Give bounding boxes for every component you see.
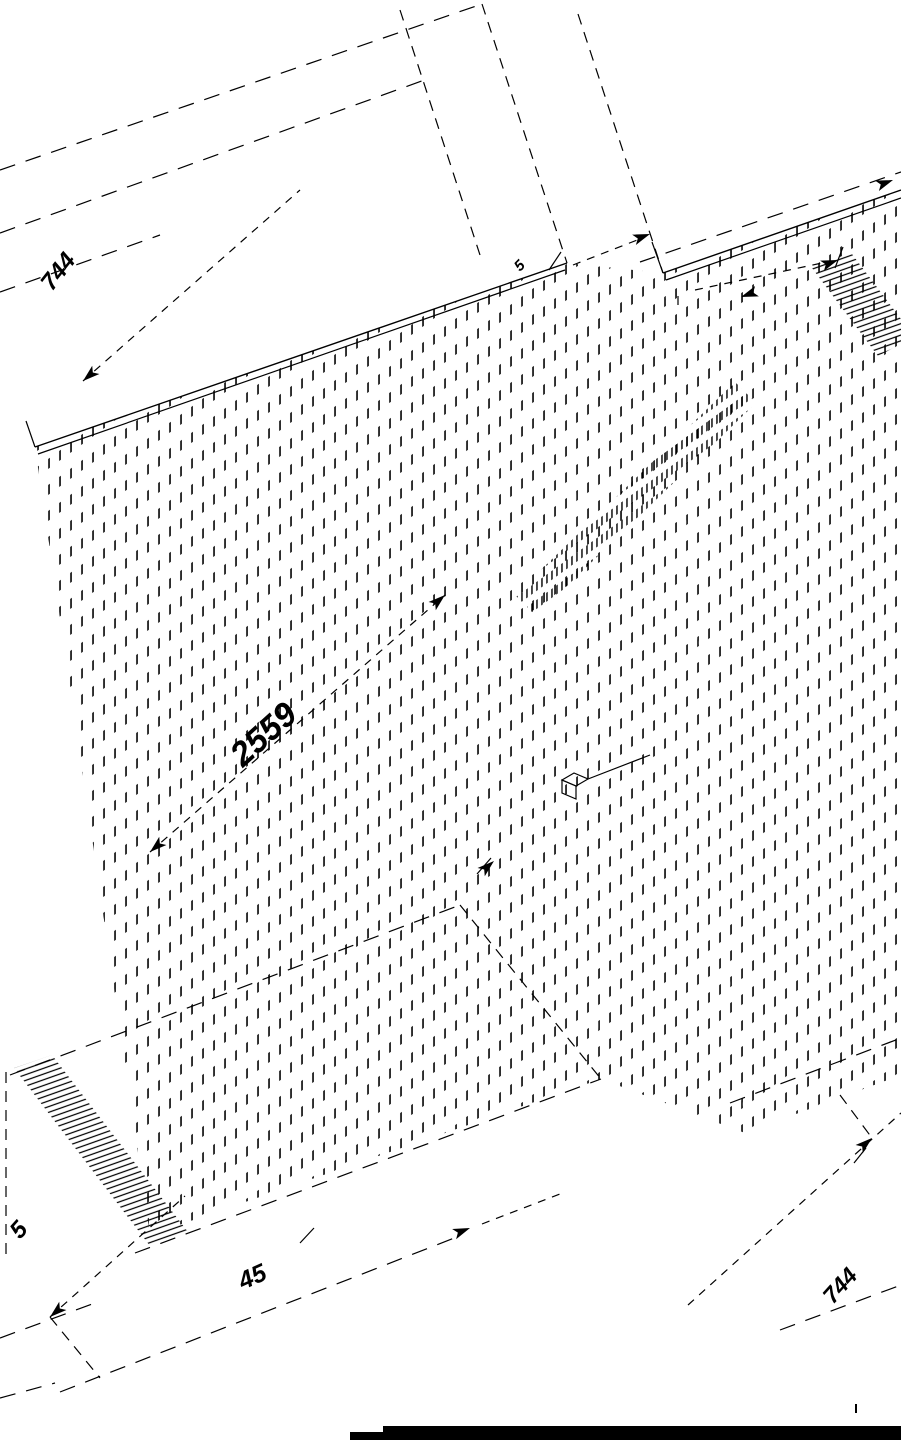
dim-extension-line <box>840 1095 872 1138</box>
dim-extension-line <box>50 1317 100 1378</box>
dim-line <box>50 1196 185 1317</box>
dim-line <box>83 190 300 381</box>
technical-drawing-page: 744 2559 5 5 45 <box>0 0 901 1440</box>
left-panel-top-corner-cap <box>26 421 35 447</box>
dim-tick <box>300 1228 314 1243</box>
dim-arrow-icon <box>452 1223 472 1239</box>
technical-drawing: 744 2559 5 5 45 <box>0 0 901 1440</box>
dim-bottom-center-label: 45 <box>233 1258 272 1296</box>
dim-bottom-right: 744 <box>688 1095 901 1330</box>
dim-top-left-width: 744 <box>35 190 300 385</box>
right-panel-top-steep-edge <box>578 14 663 273</box>
left-panel <box>0 4 756 1262</box>
footer-bar-step <box>350 1432 383 1440</box>
left-panel-front-face <box>35 263 601 1235</box>
dim-top-left-width-label: 744 <box>35 248 81 296</box>
dim-line-continuation <box>482 1192 565 1224</box>
footer-bar-main <box>383 1426 901 1440</box>
left-panel-top-steep-edge-2 <box>400 10 480 255</box>
corner-dashed-edge <box>0 1303 95 1338</box>
dim-line <box>60 1235 462 1392</box>
dim-arrow-icon <box>875 175 895 191</box>
footer-bar <box>350 1404 901 1440</box>
corner-dashed-edge-2 <box>0 1383 55 1398</box>
dim-bottom-right-label: 744 <box>817 1262 862 1308</box>
dim-bottom-left-label: 5 <box>4 1216 33 1244</box>
dim-arrow-icon <box>856 1134 876 1153</box>
left-panel-back-top-edge <box>0 4 482 170</box>
dim-edge-gap-label: 5 <box>511 256 529 274</box>
dim-line <box>573 237 645 265</box>
left-panel-top-steep-edge <box>482 4 567 263</box>
footer-tick <box>855 1404 857 1413</box>
left-panel-top-hidden-edge <box>0 78 430 233</box>
